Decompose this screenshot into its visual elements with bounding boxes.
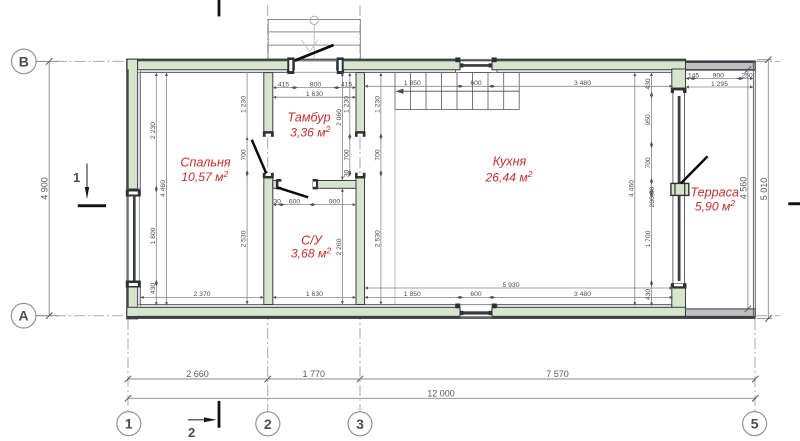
svg-text:1 295: 1 295 [711,81,728,88]
svg-text:2 530: 2 530 [241,230,248,247]
svg-text:5 930: 5 930 [502,282,519,289]
svg-text:2 660: 2 660 [186,369,209,379]
svg-text:200,50: 200,50 [649,186,656,207]
svg-text:600: 600 [470,291,482,298]
svg-text:12 000: 12 000 [427,389,455,399]
svg-text:2: 2 [188,425,195,440]
svg-text:7 570: 7 570 [546,369,569,379]
svg-text:415: 415 [341,81,353,88]
svg-text:4 560: 4 560 [738,177,748,200]
svg-text:Тамбур: Тамбур [287,111,330,125]
svg-text:1 800: 1 800 [150,227,157,244]
svg-text:2 230: 2 230 [150,122,157,139]
svg-text:1 850: 1 850 [404,291,421,298]
svg-text:26,44 м2: 26,44 м2 [484,169,532,184]
svg-text:600: 600 [470,80,482,87]
svg-text:3 480: 3 480 [574,80,591,87]
svg-text:5: 5 [751,416,759,432]
svg-text:1 630: 1 630 [306,291,323,298]
svg-text:2 060: 2 060 [336,109,343,126]
svg-text:415: 415 [278,81,290,88]
svg-text:Кухня: Кухня [493,155,527,169]
svg-text:145: 145 [688,72,700,79]
svg-text:4 460: 4 460 [628,180,635,197]
svg-text:2 530: 2 530 [375,230,382,247]
svg-text:1 230: 1 230 [343,96,350,113]
svg-text:430: 430 [150,283,157,295]
svg-text:30: 30 [343,170,350,178]
svg-text:1 630: 1 630 [306,91,323,98]
svg-text:В: В [19,53,29,69]
svg-text:А: А [19,308,29,324]
svg-text:700: 700 [343,149,350,161]
svg-text:430: 430 [645,289,652,301]
svg-text:800: 800 [310,81,322,88]
svg-text:4 900: 4 900 [40,177,50,200]
svg-text:1: 1 [73,170,80,185]
svg-text:900: 900 [713,72,725,79]
svg-text:700: 700 [375,149,382,161]
svg-text:430: 430 [645,78,652,90]
svg-text:700: 700 [241,149,248,161]
svg-text:600: 600 [289,198,301,205]
svg-text:2 370: 2 370 [193,291,210,298]
svg-text:1 230: 1 230 [375,96,382,113]
svg-text:1 230: 1 230 [241,96,248,113]
svg-text:950: 950 [645,114,652,126]
svg-text:5 010: 5 010 [759,178,769,201]
svg-text:3,36 м2: 3,36 м2 [290,124,330,139]
svg-text:5,90 м2: 5,90 м2 [695,198,735,213]
svg-text:1: 1 [125,416,133,432]
svg-text:900: 900 [329,198,341,205]
svg-text:Спальня: Спальня [180,156,231,170]
svg-text:1 700: 1 700 [645,230,652,247]
svg-text:1 850: 1 850 [404,80,421,87]
svg-text:2 260: 2 260 [336,238,343,255]
svg-text:4 460: 4 460 [160,180,167,197]
svg-text:1 770: 1 770 [303,369,326,379]
svg-text:30: 30 [273,198,281,205]
svg-text:10,57 м2: 10,57 м2 [181,169,228,184]
svg-text:2: 2 [264,416,272,432]
svg-text:700: 700 [645,157,652,169]
svg-text:3 480: 3 480 [574,291,591,298]
svg-text:3: 3 [356,416,364,432]
svg-text:3,68 м2: 3,68 м2 [291,245,331,260]
svg-text:250: 250 [741,72,753,79]
